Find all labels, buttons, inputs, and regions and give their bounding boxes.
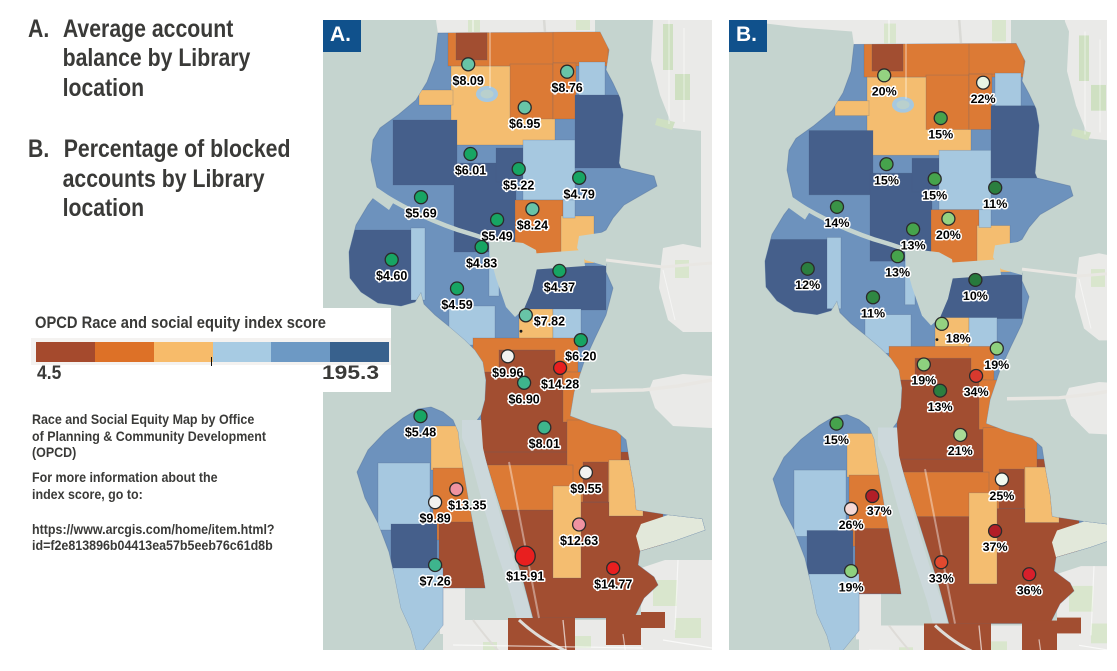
svg-text:15%: 15%: [824, 433, 849, 447]
svg-text:11%: 11%: [983, 197, 1007, 211]
svg-text:18%: 18%: [946, 332, 971, 346]
svg-text:$5.49: $5.49: [481, 229, 512, 243]
svg-text:37%: 37%: [867, 504, 892, 518]
svg-text:33%: 33%: [929, 572, 954, 586]
svg-text:15%: 15%: [928, 127, 953, 141]
svg-text:14%: 14%: [825, 216, 850, 230]
svg-text:15%: 15%: [922, 188, 947, 202]
svg-text:19%: 19%: [911, 374, 936, 388]
svg-text:13%: 13%: [928, 400, 953, 414]
svg-text:20%: 20%: [872, 85, 897, 99]
svg-text:$4.59: $4.59: [441, 298, 472, 312]
svg-text:19%: 19%: [984, 358, 1009, 372]
svg-text:$15.91: $15.91: [506, 570, 544, 584]
svg-text:26%: 26%: [839, 518, 864, 532]
svg-text:10%: 10%: [963, 289, 988, 303]
svg-text:$8.24: $8.24: [517, 219, 548, 233]
svg-text:$9.96: $9.96: [492, 366, 523, 380]
svg-text:19%: 19%: [839, 580, 864, 594]
svg-text:20%: 20%: [936, 228, 961, 242]
svg-text:$5.22: $5.22: [503, 179, 534, 193]
svg-text:$14.28: $14.28: [541, 377, 579, 391]
svg-text:$13.35: $13.35: [448, 498, 486, 512]
svg-text:34%: 34%: [964, 385, 989, 399]
svg-text:13%: 13%: [885, 266, 910, 280]
svg-text:37%: 37%: [983, 540, 1008, 554]
svg-text:$6.01: $6.01: [455, 164, 486, 178]
svg-text:$12.63: $12.63: [560, 534, 598, 548]
svg-text:$8.01: $8.01: [529, 437, 560, 451]
svg-text:$14.77: $14.77: [594, 578, 632, 592]
svg-text:$6.20: $6.20: [565, 350, 596, 364]
svg-text:$8.09: $8.09: [453, 74, 484, 88]
svg-text:$4.83: $4.83: [466, 257, 497, 271]
svg-text:$7.82: $7.82: [534, 314, 565, 328]
svg-text:11%: 11%: [861, 307, 885, 321]
svg-text:$8.76: $8.76: [551, 81, 582, 95]
svg-text:25%: 25%: [989, 489, 1014, 503]
svg-text:13%: 13%: [901, 239, 926, 253]
svg-text:$5.69: $5.69: [405, 207, 436, 221]
svg-text:$4.79: $4.79: [564, 187, 595, 201]
svg-text:36%: 36%: [1017, 584, 1042, 598]
svg-text:$6.90: $6.90: [508, 392, 539, 406]
svg-text:$4.60: $4.60: [376, 269, 407, 283]
svg-text:21%: 21%: [948, 444, 973, 458]
svg-text:$7.26: $7.26: [419, 575, 450, 589]
svg-text:$6.95: $6.95: [509, 117, 540, 131]
svg-text:$4.37: $4.37: [544, 280, 575, 294]
svg-text:$5.48: $5.48: [405, 426, 436, 440]
svg-text:$9.89: $9.89: [419, 512, 450, 526]
svg-text:12%: 12%: [795, 278, 820, 292]
svg-text:15%: 15%: [874, 174, 899, 188]
svg-text:22%: 22%: [971, 92, 996, 106]
svg-text:$9.55: $9.55: [570, 482, 601, 496]
